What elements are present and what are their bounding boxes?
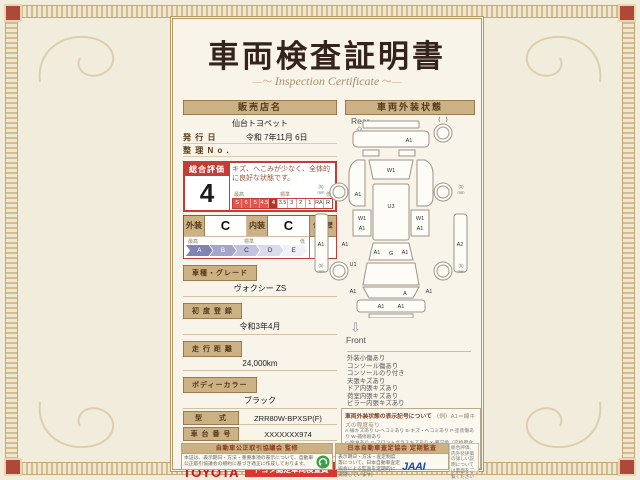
panel-code: A1 (374, 250, 381, 256)
flourish-ornament (496, 390, 606, 460)
front-bumper (357, 300, 425, 312)
interior-label: 内装 (247, 216, 268, 236)
condition-note: コンソールのり付き (347, 370, 471, 378)
tread-depth-unit: mm (458, 190, 465, 195)
condition-grade-main: 外装 C 内装 C 最高 標準 低 A B (184, 216, 309, 258)
tail-light-left (363, 150, 379, 156)
panel-code: W1 (387, 168, 395, 174)
flourish-ornament (34, 24, 144, 94)
grade-scale: 最高 標準 低 A B C D E (184, 237, 309, 258)
certificate-frame: 車両検査証明書 —～ Inspection Certificate ～— 販売店… (170, 16, 484, 472)
grade-chevron: A (186, 245, 213, 256)
field-value: 令和3年4月 (183, 319, 337, 335)
subtitle-ornament: ～— (379, 77, 402, 88)
field-value: ZRR80W-BPXSP(F) (239, 414, 337, 423)
front-lower-bar (369, 314, 413, 318)
panel-code: A1 (402, 250, 409, 256)
rating-scale-cell-selected: 4 (269, 199, 278, 208)
spare-tire-icon (437, 127, 449, 139)
wheel-front-right (437, 265, 449, 277)
border-ornament-right (622, 5, 635, 475)
tread-depth-label: (5) (458, 184, 464, 189)
field-label: 車種・グレード (183, 265, 257, 281)
field-chassis-no: 車 台 番 号 XXXXXXX974 (183, 428, 337, 441)
field-label: ボディーカラー (183, 377, 257, 393)
jaai-audit-title: 日本自動車査定協会 定期監査 (336, 444, 448, 454)
tread-depth-unit: mm (458, 269, 465, 274)
tread-depth-label: (5) (458, 263, 464, 268)
overall-rating-header: 総合評価 (185, 163, 229, 176)
exterior-condition-header: 車両外装状態 (345, 100, 475, 115)
rating-scale-cell: S (233, 199, 242, 208)
panel-code: A1 (398, 304, 405, 310)
fair-trade-council-title: 自動車公正取引協議会 監修 (182, 444, 332, 454)
panel-code: U3 (387, 204, 394, 210)
front-arrow-icon: ⇩ (350, 321, 361, 334)
panel-code: A1 (378, 304, 385, 310)
tread-depth-label: (5) (318, 184, 324, 189)
dealer-header: 販売店名 (183, 100, 337, 115)
rear-quarter-left (349, 160, 365, 206)
spare-size-label: ( ) (438, 117, 447, 123)
certificate-page: 車両検査証明書 —～ Inspection Certificate ～— 販売店… (0, 0, 640, 480)
exterior-label: 外装 (184, 216, 205, 236)
rear-quarter-right (417, 160, 433, 206)
jaai-audit-body: 表示期日・方法・査定制度等について、日本自動車査定協会による監査を定期的に実施し… (336, 454, 448, 480)
field-mileage: 走 行 距 離 24,000km (183, 338, 337, 371)
field-model-code: 型 式 ZRR80W-BPXSP(F) (183, 412, 337, 425)
condition-grade-row: 外装 C 内装 C (184, 216, 309, 237)
border-corner-ornament (618, 4, 636, 22)
grade-chevron: E (280, 245, 307, 256)
field-label: 初 度 登 録 (183, 303, 242, 319)
car-exterior-diagram: ( ) A1 W1 A1 W1 A1 W1 A1 U3 A1 A2 A1 A1 … (313, 116, 469, 318)
front-panel (363, 287, 419, 298)
border-corner-ornament (4, 458, 22, 476)
border-ornament-left (5, 5, 18, 475)
page-subtitle: —～ Inspection Certificate ～— (173, 73, 481, 89)
jaai-audit-box: 日本自動車査定協会 定期監査 表示期日・方法・査定制度等について、日本自動車査定… (335, 443, 449, 470)
border-corner-ornament (618, 458, 636, 476)
border-corner-ornament (4, 4, 22, 22)
panel-code: A1 (342, 242, 349, 248)
overall-rating-score: 4 (185, 176, 229, 210)
panel-code: U1 (349, 262, 356, 268)
wheel-rear-left (333, 186, 345, 198)
panel-code: A1 (406, 138, 413, 144)
wheel-rear-right (437, 186, 449, 198)
overall-rating-score-panel: 総合評価 4 (185, 163, 230, 210)
jaai-audit-text: 表示期日・方法・査定制度等について、日本自動車査定協会による監査を定期的に実施し… (338, 455, 400, 479)
condition-notes-list: 外装小傷あり コンソール傷あり コンソールのり付き 天張キズあり ドア内張キズあ… (347, 351, 471, 415)
flourish-ornament (34, 390, 144, 460)
ref-no-label: 整 理 N o . (183, 145, 230, 156)
condition-note: 外装小傷あり (347, 355, 471, 363)
reverse-side-note: 総合評価、内外装評価の詳しい説明については裏面をご覧ください (449, 443, 479, 472)
fair-trade-council-logo-icon (316, 455, 330, 469)
field-body-color: ボディーカラー ブラック (183, 374, 337, 409)
tail-light-right (399, 150, 415, 156)
rating-scale-cell: 2 (297, 199, 306, 208)
panel-code: A1 (355, 192, 362, 198)
rating-scale-cell: 4.5 (260, 199, 269, 208)
field-label: 型 式 (183, 411, 239, 425)
front-label: Front (346, 335, 366, 345)
tread-depth-unit: mm (318, 190, 325, 195)
symbol-legend-title: 車両外装状態の表示記号について （例）A1＝線キズの程度有り (345, 411, 477, 429)
panel-code: W1 (416, 216, 424, 222)
rear-bumper (353, 131, 429, 147)
condition-note: ドア内張キズあり (347, 385, 471, 393)
panel-code: A1 (417, 226, 424, 232)
field-label: 車 台 番 号 (183, 427, 239, 441)
subtitle-ornament: —～ (252, 77, 275, 88)
fair-trade-council-box: 自動車公正取引協議会 監修 本証は、表示期日・方法・重要事項の表示について、自動… (181, 443, 333, 470)
rating-scale-cell: 3 (288, 199, 297, 208)
condition-note: コンソール傷あり (347, 363, 471, 371)
grade-chevron: C (233, 245, 260, 256)
rating-scale-cell: 3.5 (278, 199, 287, 208)
panel-code: A (403, 291, 407, 297)
panel-code: A1 (318, 242, 325, 248)
rating-scale-cell: 5 (251, 199, 260, 208)
flourish-ornament (496, 24, 606, 94)
grade-scale-chevrons: A B C D E (186, 245, 307, 256)
interior-grade: C (268, 216, 309, 236)
side-panel-left (353, 210, 371, 236)
roof-panel (373, 184, 409, 240)
grade-chevron: D (257, 245, 284, 256)
fair-trade-council-body: 本証は、表示期日・方法・重要事項の表示について、自動車公正取引協議会の規約に基づ… (182, 454, 332, 470)
condition-note: ピラー内張キズあり (347, 400, 471, 408)
rating-scale-cell: 6 (242, 199, 251, 208)
grade-scale-labels: 最高 標準 低 (186, 238, 307, 245)
fair-trade-council-text: 本証は、表示期日・方法・重要事項の表示について、自動車公正取引協議会の規約に基づ… (184, 456, 314, 468)
wheel-front-left (333, 265, 345, 277)
symbol-legend-line: A-線キズあり U-ヘコミあり B-キズ・ヘコミあり P-塗装傷あり W-補修跡… (345, 429, 477, 441)
panel-code: A2 (457, 242, 464, 248)
field-value: ブラック (183, 393, 337, 409)
hood (363, 263, 419, 285)
panel-code: A1 (426, 289, 433, 295)
tread-depth-unit: mm (318, 269, 325, 274)
tread-depth-label: (5) (318, 263, 324, 268)
panel-code: W1 (358, 216, 366, 222)
rear-spoiler (363, 121, 419, 128)
grade-chevron: B (210, 245, 237, 256)
jaai-logo: JAAI (402, 461, 425, 473)
field-label: 走 行 距 離 (183, 341, 242, 357)
panel-code: A1 (359, 226, 366, 232)
issue-date-label: 発 行 日 (183, 132, 216, 143)
exterior-grade: C (205, 216, 247, 236)
field-value: 24,000km (183, 357, 337, 371)
side-panel-right (411, 210, 429, 236)
field-value: XXXXXXX974 (239, 430, 337, 439)
panel-code: A1 (350, 289, 357, 295)
panel-code: G (389, 251, 393, 257)
page-title: 車両検査証明書 (173, 31, 481, 76)
